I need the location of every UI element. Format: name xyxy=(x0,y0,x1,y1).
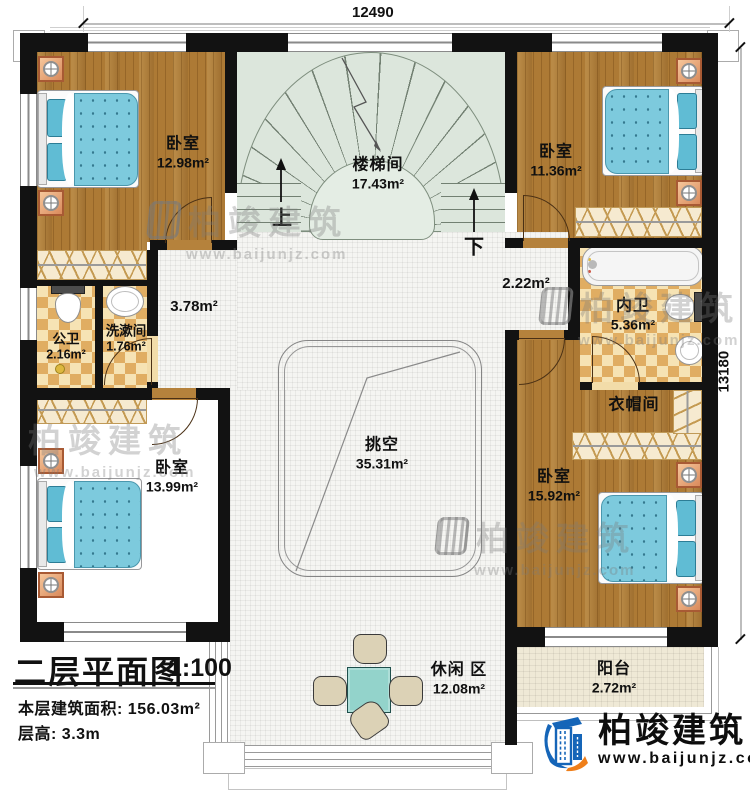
window xyxy=(20,288,37,340)
chair xyxy=(389,676,423,706)
lamp-icon xyxy=(43,61,59,77)
footing-post xyxy=(203,742,245,774)
lamp-icon xyxy=(681,63,697,79)
wall-segment xyxy=(20,622,64,642)
dimension-top: 12490 xyxy=(352,4,394,21)
eave-line xyxy=(50,27,710,28)
dimension-line-right xyxy=(740,48,742,640)
window xyxy=(545,627,667,647)
label-hall-right: 2.22m² xyxy=(502,275,550,293)
window xyxy=(64,622,186,642)
label-bedroom-tr: 卧室 11.36m² xyxy=(530,143,581,178)
bed xyxy=(602,86,704,176)
brand-name: 柏竣建筑 xyxy=(598,714,750,750)
lamp-icon xyxy=(43,453,59,469)
nightstand xyxy=(38,56,64,82)
toilet-bowl xyxy=(665,294,694,320)
floor-hall-left xyxy=(150,250,237,390)
wall-segment xyxy=(147,250,158,336)
extension-line xyxy=(83,6,84,32)
nightstand xyxy=(38,448,64,474)
wall-segment xyxy=(20,186,37,288)
nightstand xyxy=(38,572,64,598)
toilet-bowl xyxy=(55,293,81,323)
lamp-icon xyxy=(681,467,697,483)
toilet xyxy=(51,283,83,325)
door-bedroom-bl xyxy=(152,398,198,445)
nightstand xyxy=(676,58,702,84)
closet-rail xyxy=(575,207,702,237)
title-underline xyxy=(13,682,215,685)
footing-post xyxy=(491,742,533,774)
floor-plan-canvas: 12490 13180 xyxy=(0,0,750,792)
pillow xyxy=(676,541,696,577)
wall-segment xyxy=(505,330,519,340)
wall-segment xyxy=(505,340,517,647)
wall-segment xyxy=(452,33,552,52)
bed-blanket xyxy=(74,481,141,568)
closet-rail xyxy=(37,250,147,280)
nightstand xyxy=(676,180,702,206)
floor-area-row: 本层建筑面积: 156.03m² xyxy=(18,695,200,719)
wall-segment xyxy=(186,33,288,52)
door-opening xyxy=(592,382,638,390)
label-stairs-down: 下 xyxy=(464,231,484,260)
label-bedroom-bl: 卧室 13.99m² xyxy=(146,459,198,494)
sink xyxy=(106,286,144,317)
brand-logo: 柏竣建筑 www.baijunjz.com xyxy=(538,714,750,772)
label-leisure: 休闲 区 12.08m² xyxy=(431,661,487,696)
dimension-right: 13180 xyxy=(716,357,733,393)
stair-flight-right xyxy=(441,183,505,232)
window xyxy=(88,33,186,52)
label-void: 挑空 35.31m² xyxy=(356,436,408,471)
label-stairs-up: 上 xyxy=(272,202,292,231)
label-balcony: 阳台 2.72m² xyxy=(592,660,636,695)
bed xyxy=(37,478,142,570)
nightstand xyxy=(38,190,64,216)
bed-headboard xyxy=(38,481,47,567)
nightstand xyxy=(676,586,702,612)
wall-segment xyxy=(564,330,580,340)
bed xyxy=(598,492,704,584)
wall-segment xyxy=(20,388,152,400)
chair xyxy=(313,676,347,706)
label-washroom: 洗漱间 1.76m² xyxy=(106,324,147,355)
closet-rail xyxy=(572,432,702,460)
bed xyxy=(37,90,139,188)
brand-text: 柏竣建筑 www.baijunjz.com xyxy=(598,714,750,768)
window xyxy=(20,466,37,568)
brand-url: www.baijunjz.com xyxy=(598,750,750,768)
wall-segment xyxy=(667,627,718,647)
pillow xyxy=(676,500,696,536)
lamp-icon xyxy=(43,577,59,593)
closet-rail xyxy=(37,396,147,424)
wall-segment xyxy=(568,248,580,332)
extension-line xyxy=(729,6,730,32)
lamp-icon xyxy=(43,195,59,211)
nightstand xyxy=(676,462,702,488)
eave-line xyxy=(50,30,710,31)
lamp-icon xyxy=(681,591,697,607)
window xyxy=(20,94,37,186)
closet-rail xyxy=(673,390,702,434)
bed-blanket xyxy=(601,495,667,582)
dimension-line-top xyxy=(83,23,730,25)
wall-segment xyxy=(638,382,704,390)
bed-blanket xyxy=(605,89,669,174)
wall-segment xyxy=(218,388,230,642)
floor-drain xyxy=(55,364,65,374)
toilet xyxy=(665,292,702,320)
bathtub-tap xyxy=(588,260,597,269)
wall-segment xyxy=(95,286,103,388)
wall-segment xyxy=(20,280,147,286)
wall-segment xyxy=(20,33,37,94)
wall-segment xyxy=(212,240,237,250)
sink xyxy=(675,336,704,365)
footprint-outline xyxy=(228,768,507,790)
floor-height-row: 层高: 3.3m xyxy=(18,720,100,744)
label-hall-left: 3.78m² xyxy=(170,298,218,316)
pillow xyxy=(677,134,697,170)
wall-segment xyxy=(702,33,718,647)
label-cloakroom: 衣帽间 xyxy=(608,397,659,416)
wall-segment xyxy=(20,340,37,466)
label-stairwell: 楼梯间 17.43m² xyxy=(352,156,404,191)
wall-segment xyxy=(505,33,517,193)
wall-segment xyxy=(505,647,517,745)
brand-logo-icon xyxy=(538,714,590,772)
label-bedroom-tl: 卧室 12.98m² xyxy=(157,135,209,170)
wall-segment xyxy=(505,238,523,248)
window xyxy=(288,33,452,52)
bathtub xyxy=(582,246,704,286)
wall-segment xyxy=(568,238,704,248)
window xyxy=(552,33,662,52)
bed-blanket xyxy=(74,93,138,186)
plan-scale: 1:100 xyxy=(168,654,232,683)
wall-segment xyxy=(580,382,592,390)
chair xyxy=(353,634,387,664)
label-bath-private: 内卫 5.36m² xyxy=(611,297,655,332)
pillow xyxy=(677,93,697,129)
title-underline xyxy=(13,687,215,689)
lamp-icon xyxy=(681,185,697,201)
bed-headboard xyxy=(38,93,47,185)
wall-segment xyxy=(225,33,237,193)
label-bedroom-br: 卧室 15.92m² xyxy=(528,468,580,503)
label-bath-public: 公卫 2.16m² xyxy=(46,332,86,363)
